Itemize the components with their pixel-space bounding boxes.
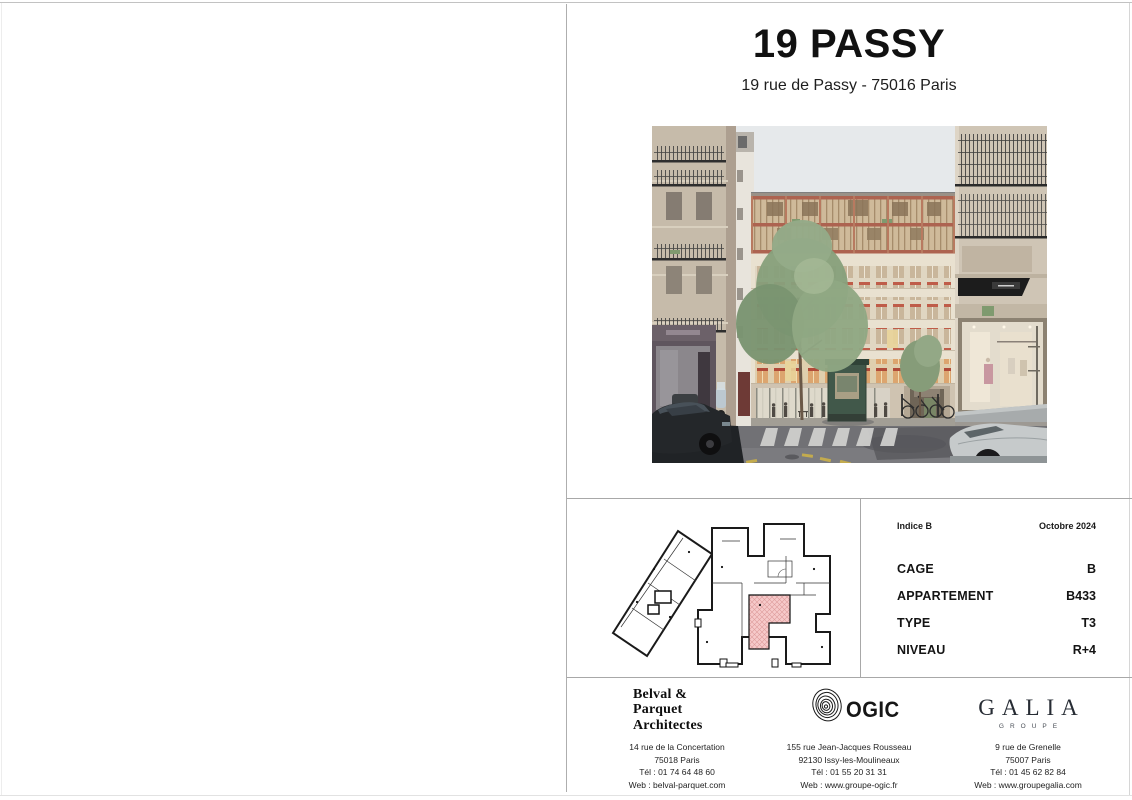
ogic-logo: OGIC xyxy=(810,686,920,728)
row-type-value: T3 xyxy=(1006,616,1096,630)
pdf-page-spread: 19 PASSY 19 rue de Passy - 75016 Paris xyxy=(0,0,1132,800)
address-line: Tél : 01 74 64 48 60 xyxy=(597,766,757,779)
galia-address: 9 rue de Grenelle 75007 Paris Tél : 01 4… xyxy=(948,741,1108,791)
address-line: Tél : 01 45 62 82 84 xyxy=(948,766,1108,779)
indice-label: Indice B xyxy=(897,521,932,531)
row-appartement-value: B433 xyxy=(1006,589,1096,603)
floor-plan xyxy=(592,507,858,670)
row-niveau-label: NIVEAU xyxy=(897,643,945,657)
ogic-address: 155 rue Jean-Jacques Rousseau 92130 Issy… xyxy=(769,741,929,791)
galia-groupe-label: GROUPE xyxy=(948,723,1114,730)
apartment-highlight xyxy=(749,595,790,649)
page-title: 19 PASSY xyxy=(566,22,1132,67)
architect-name-line: Belval & xyxy=(633,687,703,702)
galia-logo: GALIA GROUPE xyxy=(948,695,1108,730)
address-line: Web : www.groupe-ogic.fr xyxy=(769,779,929,792)
architect-logo: Belval & Parquet Architectes xyxy=(633,687,703,733)
section-rule-bottom xyxy=(567,677,1132,678)
address-line: 92130 Issy-les-Moulineaux xyxy=(769,754,929,767)
address-line: Web : belval-parquet.com xyxy=(597,779,757,792)
page-subtitle: 19 rue de Passy - 75016 Paris xyxy=(566,77,1132,95)
galia-wordmark: GALIA xyxy=(948,695,1115,721)
address-line: 155 rue Jean-Jacques Rousseau xyxy=(769,741,929,754)
date-label: Octobre 2024 xyxy=(992,521,1096,531)
row-niveau-value: R+4 xyxy=(1006,643,1096,657)
architect-name-line: Architectes xyxy=(633,718,703,733)
row-appartement-label: APPARTEMENT xyxy=(897,589,993,603)
row-cage-label: CAGE xyxy=(897,562,934,576)
ogic-rings-icon xyxy=(810,686,846,724)
building-photo xyxy=(652,126,1047,463)
ogic-wordmark: OGIC xyxy=(846,697,900,723)
plan-info-divider xyxy=(860,498,861,677)
row-cage-value: B xyxy=(1006,562,1096,576)
pages-divider-line xyxy=(566,4,567,792)
row-type-label: TYPE xyxy=(897,616,930,630)
page-edge-left xyxy=(1,3,2,795)
address-line: Tél : 01 55 20 31 31 xyxy=(769,766,929,779)
page-edge-top xyxy=(0,2,1132,3)
page-edge-bottom xyxy=(0,795,1132,796)
address-line: 75007 Paris xyxy=(948,754,1108,767)
address-line: 75018 Paris xyxy=(597,754,757,767)
architect-name-line: Parquet xyxy=(633,702,703,717)
address-line: 9 rue de Grenelle xyxy=(948,741,1108,754)
architect-address: 14 rue de la Concertation 75018 Paris Té… xyxy=(597,741,757,791)
address-line: 14 rue de la Concertation xyxy=(597,741,757,754)
address-line: Web : www.groupegalia.com xyxy=(948,779,1108,792)
section-rule-top xyxy=(567,498,1132,499)
